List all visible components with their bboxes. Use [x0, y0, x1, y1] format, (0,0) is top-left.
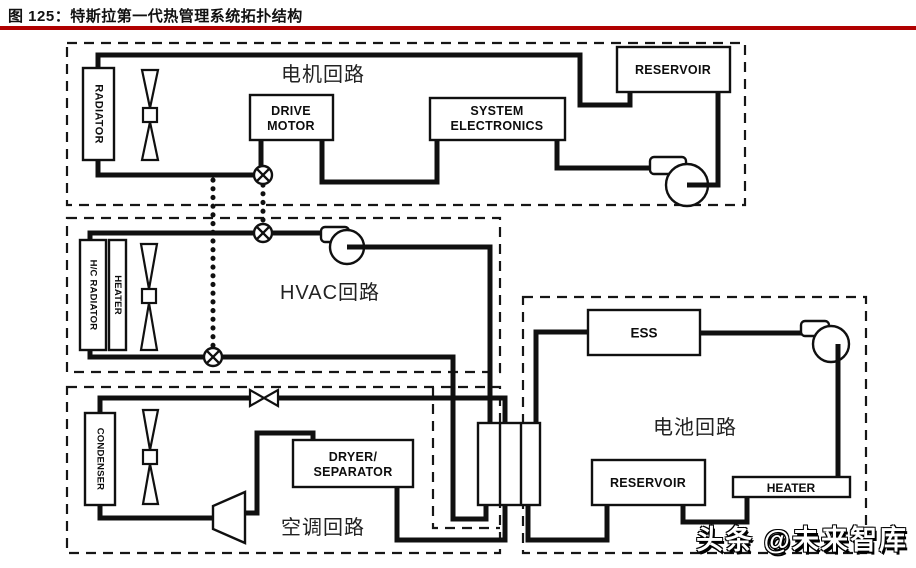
- watermark: 头条 @未来智库: [696, 518, 908, 557]
- battery-pump-icon: [801, 321, 849, 477]
- compressor-icon: [213, 492, 245, 543]
- shutoff-valve-icon: [204, 348, 222, 366]
- dryer-separator-label-2: SEPARATOR: [313, 465, 392, 479]
- drive-motor-label-1: DRIVE: [271, 104, 311, 118]
- hvac-heater-label: HEATER: [112, 275, 123, 315]
- hc-radiator-label: H/C RADIATOR: [88, 260, 99, 331]
- dryer-separator-label-1: DRYER/: [329, 450, 378, 464]
- motor-reservoir-label: RESERVOIR: [635, 63, 711, 77]
- heat-exchanger: [478, 423, 540, 505]
- battery-reservoir-label: RESERVOIR: [610, 476, 686, 490]
- battery-loop-label: 电池回路: [653, 416, 737, 439]
- condenser-label: CONDENSER: [95, 428, 106, 491]
- motor-pump-icon: [650, 92, 718, 206]
- expansion-valve-icon: [250, 390, 278, 406]
- system-electronics-label-2: ELECTRONICS: [451, 119, 544, 133]
- hvac-pump-icon: [321, 227, 490, 423]
- radiator-label: RADIATOR: [93, 84, 105, 143]
- ess-label: ESS: [630, 326, 657, 341]
- shutoff-valve-icon: [254, 224, 272, 242]
- battery-heater-label: HEATER: [767, 481, 816, 495]
- motor-loop-label: 电机回路: [281, 63, 365, 86]
- motor-loop-pipes: [98, 55, 658, 182]
- drive-motor-label-2: MOTOR: [267, 119, 315, 133]
- shutoff-valve-icon: [254, 166, 272, 184]
- system-electronics-label-1: SYSTEM: [470, 104, 523, 118]
- condenser-fan-icon: [143, 410, 158, 504]
- figure-page: 图 125：特斯拉第一代热管理系统拓扑结构: [0, 0, 916, 568]
- ac-loop-label: 空调回路: [281, 516, 365, 539]
- hvac-fan-icon: [141, 244, 157, 350]
- hvac-loop-label: HVAC回路: [280, 281, 380, 304]
- thermal-topology-diagram: 电机回路 HVAC回路 空调回路 电池回路 RADIATOR DRIVE MOT…: [0, 0, 916, 568]
- radiator-fan-icon: [142, 70, 158, 160]
